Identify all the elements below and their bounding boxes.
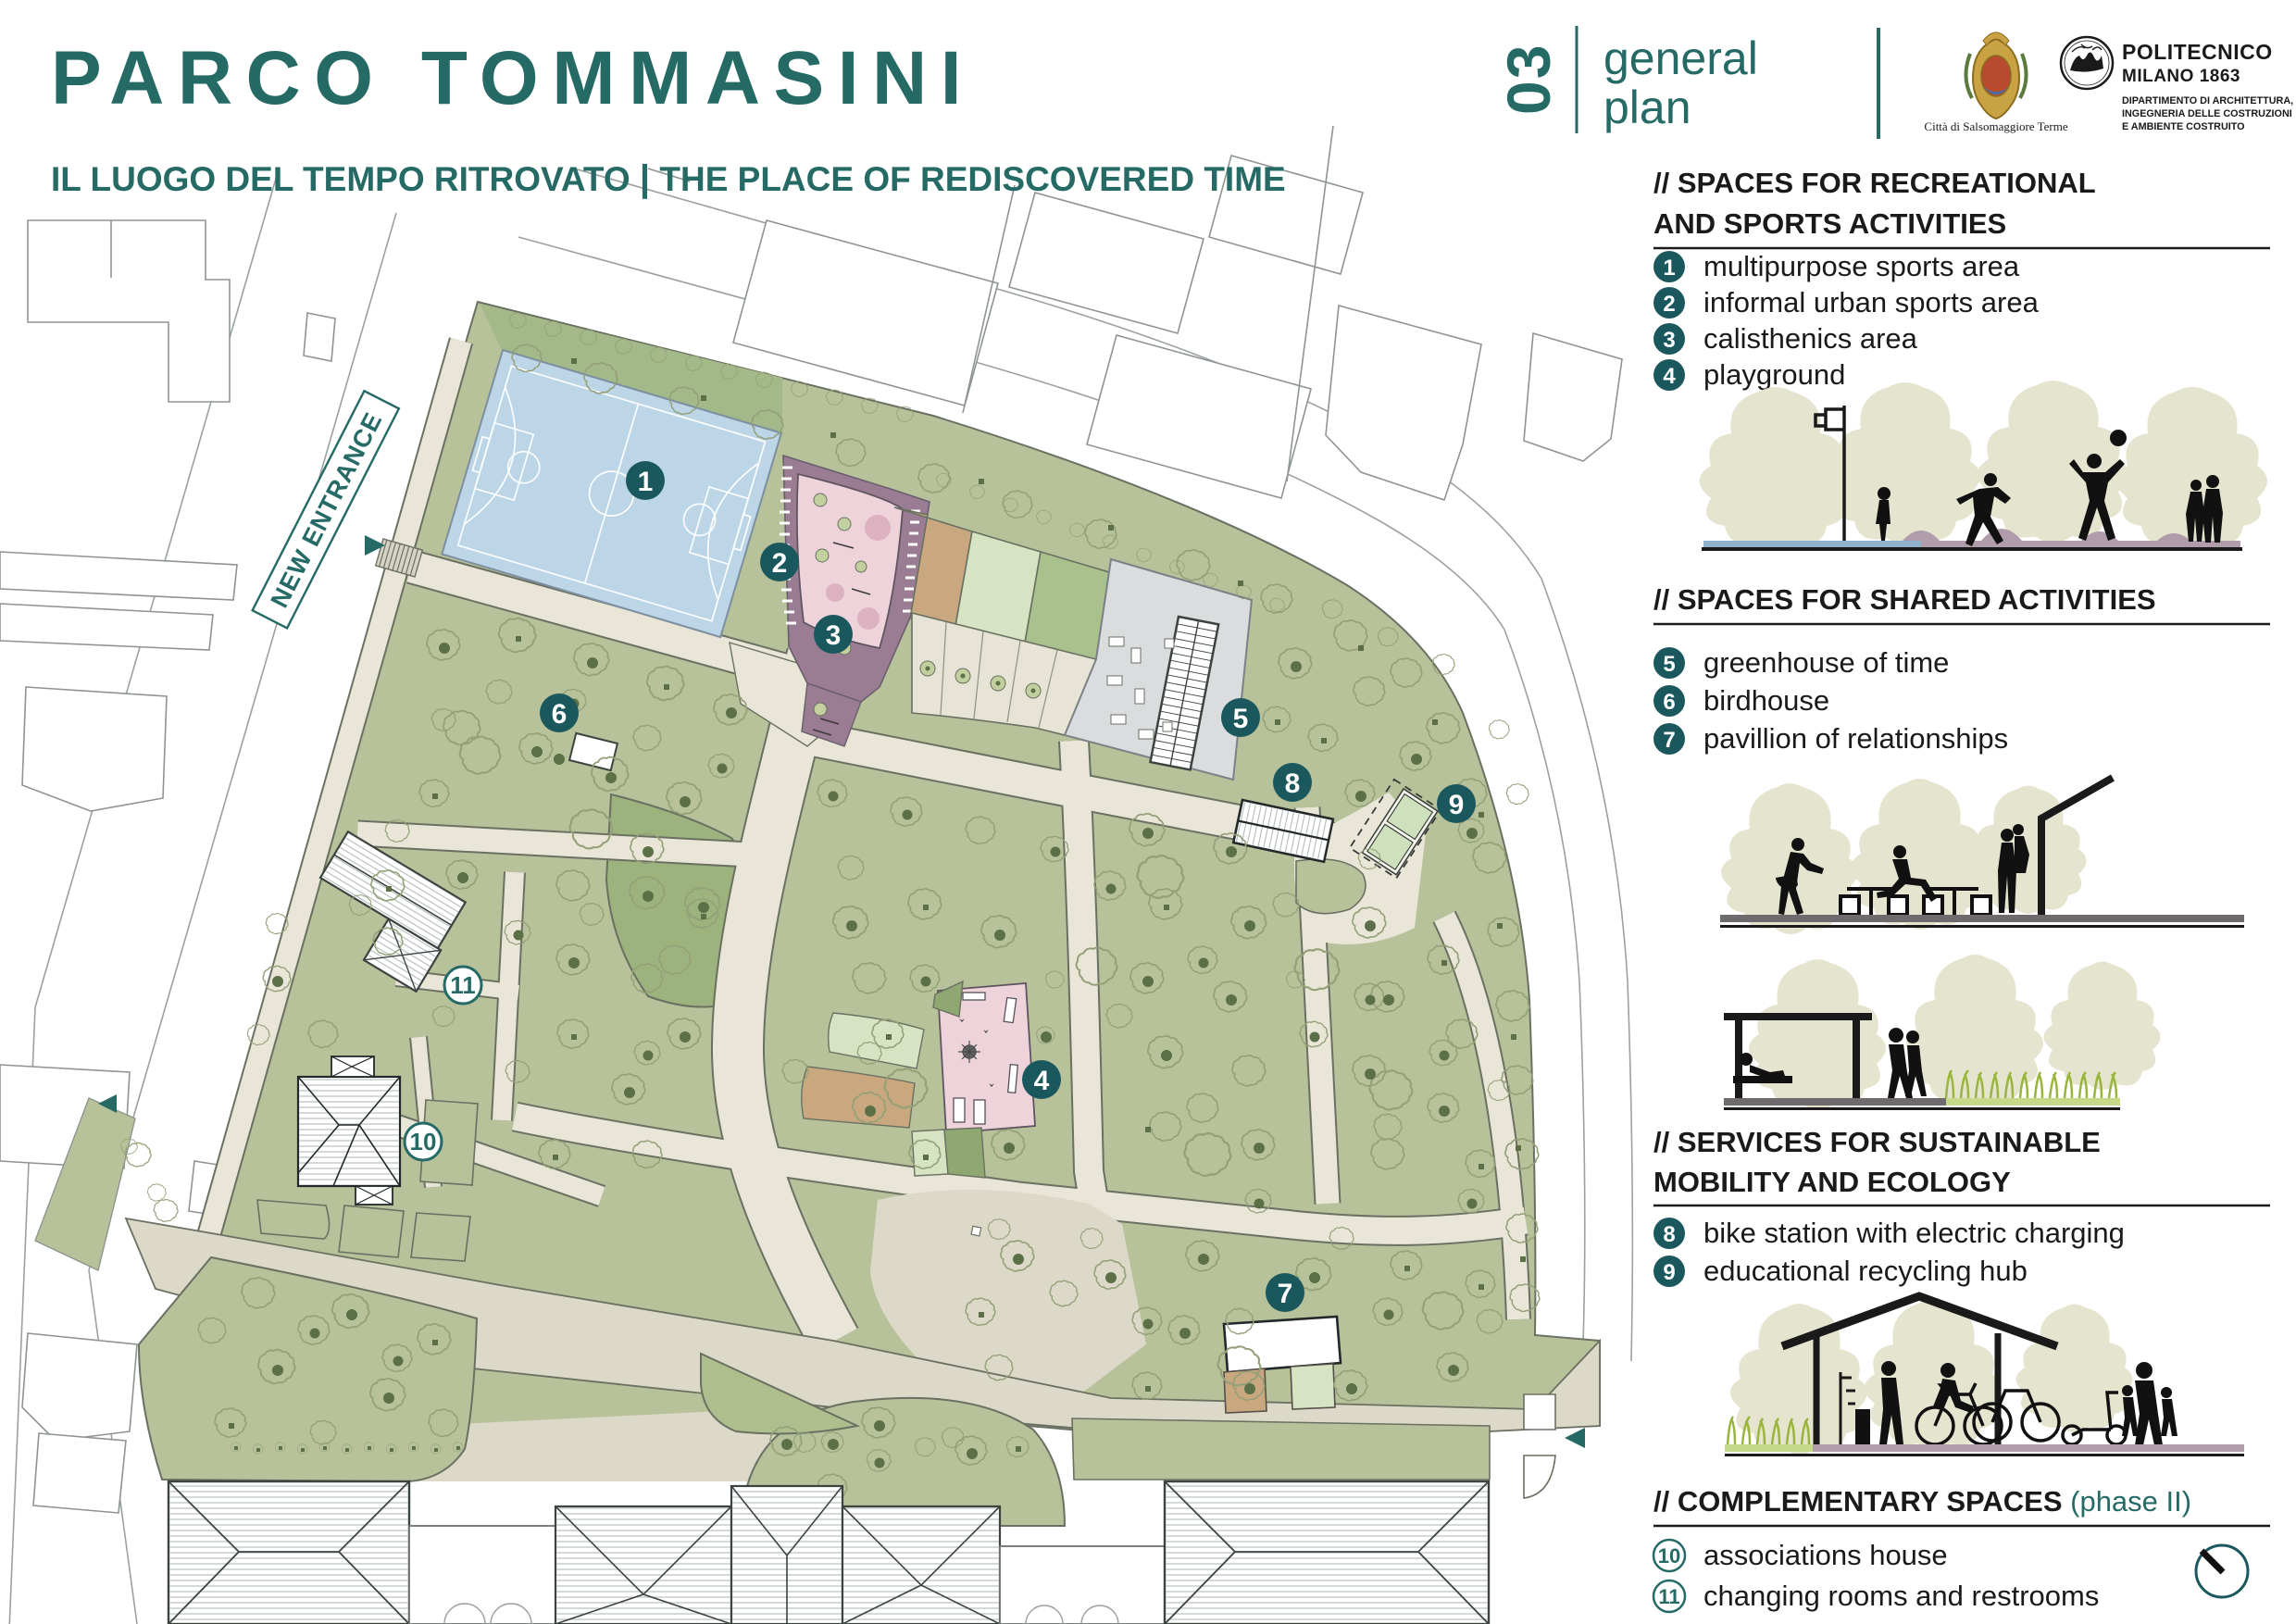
- svg-text:3: 3: [1663, 328, 1675, 353]
- svg-text:11: 11: [1658, 1585, 1679, 1608]
- svg-text:11: 11: [450, 971, 476, 999]
- svg-text:6: 6: [1663, 690, 1675, 715]
- svg-text:calisthenics area: calisthenics area: [1703, 322, 1918, 355]
- svg-text:5: 5: [1663, 652, 1675, 677]
- svg-text:4: 4: [1034, 1066, 1050, 1096]
- svg-text:informal urban sports area: informal urban sports area: [1703, 286, 2040, 319]
- svg-text:MOBILITY AND ECOLOGY: MOBILITY AND ECOLOGY: [1653, 1166, 2011, 1198]
- svg-text:Città di Salsomaggiore Terme: Città di Salsomaggiore Terme: [1924, 119, 2067, 133]
- svg-text:9: 9: [1663, 1260, 1675, 1285]
- svg-text:PARCO TOMMASINI: PARCO TOMMASINI: [51, 36, 975, 120]
- svg-text:changing rooms and restrooms: changing rooms and restrooms: [1703, 1580, 2099, 1612]
- svg-text:E AMBIENTE COSTRUITO: E AMBIENTE COSTRUITO: [2122, 121, 2245, 132]
- svg-text:10: 10: [410, 1128, 437, 1156]
- svg-text:POLITECNICO: POLITECNICO: [2122, 40, 2273, 64]
- svg-text:4: 4: [1663, 364, 1676, 389]
- svg-text:MILANO 1863: MILANO 1863: [2122, 67, 2240, 86]
- svg-text:associations house: associations house: [1703, 1539, 1948, 1571]
- svg-text:multipurpose sports area: multipurpose sports area: [1703, 250, 2020, 282]
- svg-text:2: 2: [1663, 292, 1675, 317]
- svg-text:INGEGNERIA DELLE COSTRUZIONI: INGEGNERIA DELLE COSTRUZIONI: [2122, 108, 2292, 119]
- svg-text:6: 6: [552, 699, 568, 730]
- svg-text:03: 03: [1494, 44, 1563, 115]
- svg-text:greenhouse of time: greenhouse of time: [1703, 646, 1949, 679]
- svg-text:birdhouse: birdhouse: [1703, 684, 1829, 717]
- svg-text:DIPARTIMENTO DI ARCHITETTURA,: DIPARTIMENTO DI ARCHITETTURA,: [2122, 95, 2293, 106]
- svg-text:2: 2: [772, 548, 788, 579]
- svg-text:7: 7: [1278, 1279, 1293, 1309]
- svg-text:bike station with electric cha: bike station with electric charging: [1703, 1217, 2125, 1249]
- svg-text:1: 1: [1663, 256, 1675, 281]
- svg-text:educational recycling hub: educational recycling hub: [1703, 1255, 2028, 1287]
- svg-text:plan: plan: [1603, 81, 1691, 133]
- svg-text:// COMPLEMENTARY SPACES (phase: // COMPLEMENTARY SPACES (phase II): [1653, 1485, 2191, 1518]
- svg-text:pavillion of relationships: pavillion of relationships: [1703, 722, 2008, 755]
- svg-text:8: 8: [1663, 1222, 1675, 1247]
- svg-text:1: 1: [638, 467, 654, 497]
- svg-text:3: 3: [826, 620, 842, 651]
- svg-text:AND SPORTS ACTIVITIES: AND SPORTS ACTIVITIES: [1653, 207, 2006, 240]
- svg-text:IL LUOGO DEL TEMPO RITROVATO |: IL LUOGO DEL TEMPO RITROVATO | THE PLACE…: [51, 158, 1286, 199]
- svg-text:8: 8: [1285, 768, 1301, 799]
- svg-text:10: 10: [1658, 1544, 1680, 1568]
- svg-text:7: 7: [1663, 728, 1675, 753]
- svg-text:9: 9: [1449, 790, 1465, 820]
- svg-text:// SERVICES FOR SUSTAINABLE: // SERVICES FOR SUSTAINABLE: [1653, 1126, 2101, 1158]
- svg-text:5: 5: [1233, 704, 1249, 734]
- svg-text:// SPACES FOR SHARED ACTIVITIE: // SPACES FOR SHARED ACTIVITIES: [1653, 583, 2156, 616]
- svg-text:// SPACES FOR RECREATIONAL: // SPACES FOR RECREATIONAL: [1653, 167, 2096, 199]
- svg-text:playground: playground: [1703, 358, 1845, 391]
- svg-text:general: general: [1603, 32, 1758, 84]
